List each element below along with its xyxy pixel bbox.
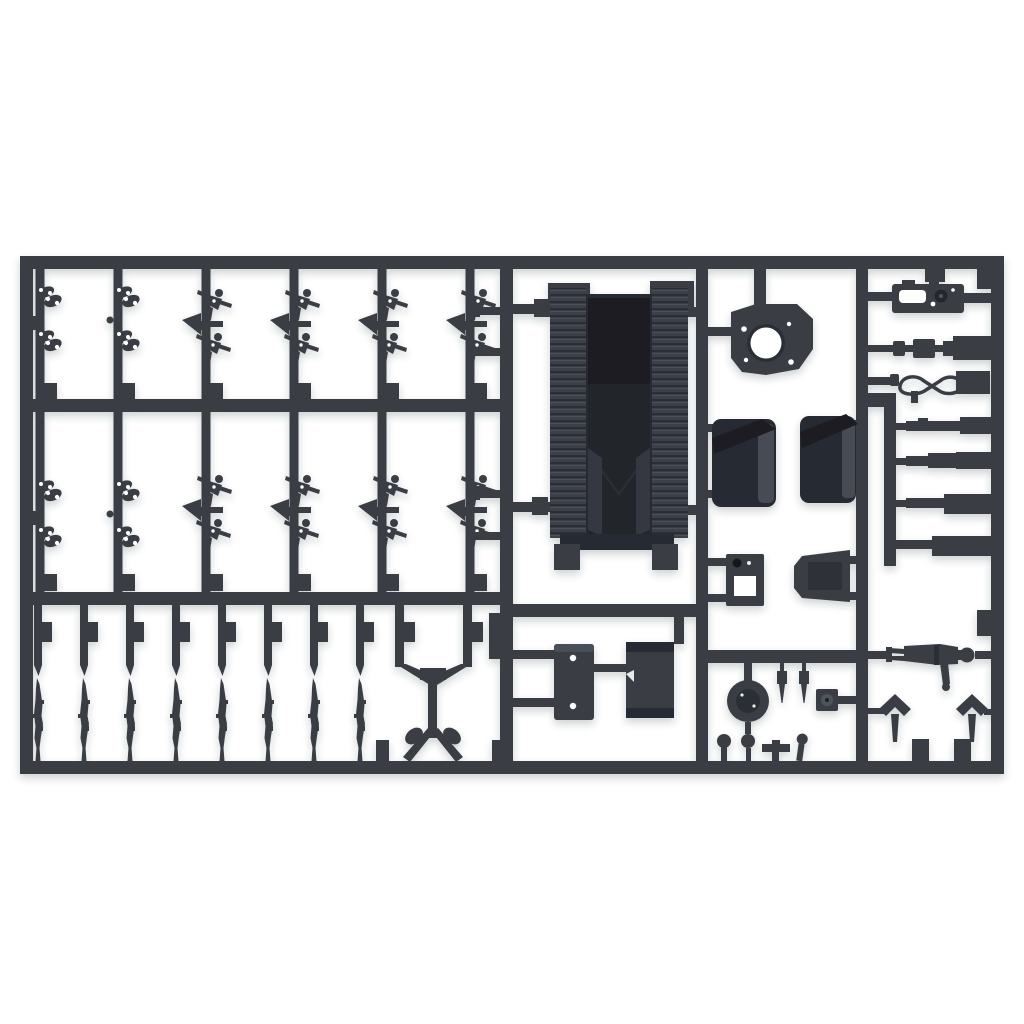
track-section-right [652, 288, 688, 538]
gun-shield-left [703, 419, 776, 507]
track-section-left [550, 288, 586, 538]
product-photo [0, 0, 1024, 1024]
small-bracket-right [794, 550, 858, 602]
gun-shield-right [800, 414, 858, 503]
sprue-photo-svg [0, 0, 1024, 1024]
